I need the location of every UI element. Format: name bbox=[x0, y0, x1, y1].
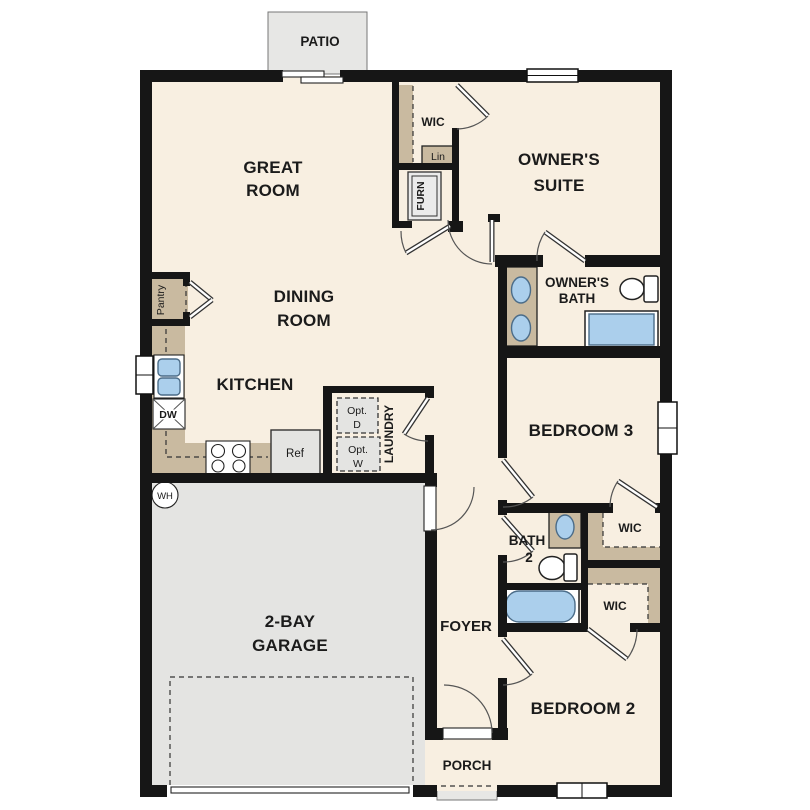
owners-shower bbox=[589, 314, 654, 345]
kitchen-label: KITCHEN bbox=[217, 375, 294, 394]
bedroom2-label: BEDROOM 2 bbox=[531, 699, 636, 718]
owners-toilet-bowl bbox=[620, 279, 644, 300]
opt-washer-label: Opt. bbox=[348, 444, 368, 456]
front-door bbox=[443, 728, 492, 739]
burner bbox=[233, 445, 246, 458]
owners-bath-label: OWNER'S bbox=[545, 275, 609, 290]
patio-label: PATIO bbox=[300, 34, 339, 49]
dining-room-label: ROOM bbox=[277, 311, 331, 330]
bedroom2-wic-label: WIC bbox=[603, 599, 627, 613]
bath2-label: BATH bbox=[509, 533, 546, 548]
owner-wic-label: WIC bbox=[421, 115, 445, 129]
owners-toilet-tank bbox=[644, 276, 658, 302]
patio-slider-panel-2 bbox=[301, 77, 343, 83]
opt-dryer-label: Opt. bbox=[347, 405, 367, 417]
owners-bath-label: BATH bbox=[559, 291, 596, 306]
owners-suite-label: SUITE bbox=[533, 176, 584, 195]
laundry-label: LAUNDRY bbox=[382, 405, 396, 463]
bedroom3-wic-label: WIC bbox=[618, 521, 642, 535]
foyer-label: FOYER bbox=[440, 618, 492, 635]
garage-door bbox=[171, 787, 409, 793]
porch-label: PORCH bbox=[443, 758, 492, 773]
garage-label: GARAGE bbox=[252, 636, 328, 655]
bath2-label: 2 bbox=[525, 550, 533, 565]
owner-wic-shelf bbox=[399, 85, 413, 163]
great-room-label: ROOM bbox=[246, 181, 300, 200]
bath2-toilet-tank bbox=[564, 554, 577, 581]
dining-room-label: DINING bbox=[274, 287, 335, 306]
bath2-tub bbox=[506, 591, 575, 622]
garage-entry-door bbox=[424, 486, 436, 531]
patio-slider-panel-1 bbox=[282, 71, 324, 77]
opt-dryer-label: D bbox=[353, 419, 361, 431]
opt-washer-label: W bbox=[353, 458, 363, 470]
bath2-toilet-bowl bbox=[539, 557, 565, 580]
garage-floor bbox=[152, 478, 425, 785]
dishwasher-label: DW bbox=[159, 409, 177, 421]
pantry-label: Pantry bbox=[155, 284, 167, 315]
furnace-label: FURN bbox=[415, 181, 427, 210]
burner bbox=[233, 460, 245, 472]
kitchen-sink-basin-top bbox=[158, 359, 180, 376]
owners-bath-sink-1 bbox=[512, 277, 531, 303]
burner bbox=[212, 460, 224, 472]
burner bbox=[212, 445, 225, 458]
bath2-sink bbox=[556, 515, 574, 539]
garage-label: 2-BAY bbox=[265, 612, 316, 631]
linen-label: Lin bbox=[431, 151, 445, 163]
great-room-label: GREAT bbox=[243, 158, 303, 177]
bedroom3-label: BEDROOM 3 bbox=[529, 421, 634, 440]
refrigerator-label: Ref bbox=[286, 448, 305, 460]
owners-bath-sink-2 bbox=[512, 315, 531, 341]
floor-plan: PATIO GREAT ROOM WIC Lin FURN OWNER'S SU… bbox=[0, 0, 810, 810]
owners-suite-label: OWNER'S bbox=[518, 150, 600, 169]
water-heater-label: WH bbox=[157, 491, 173, 502]
kitchen-sink-basin-bottom bbox=[158, 378, 180, 395]
